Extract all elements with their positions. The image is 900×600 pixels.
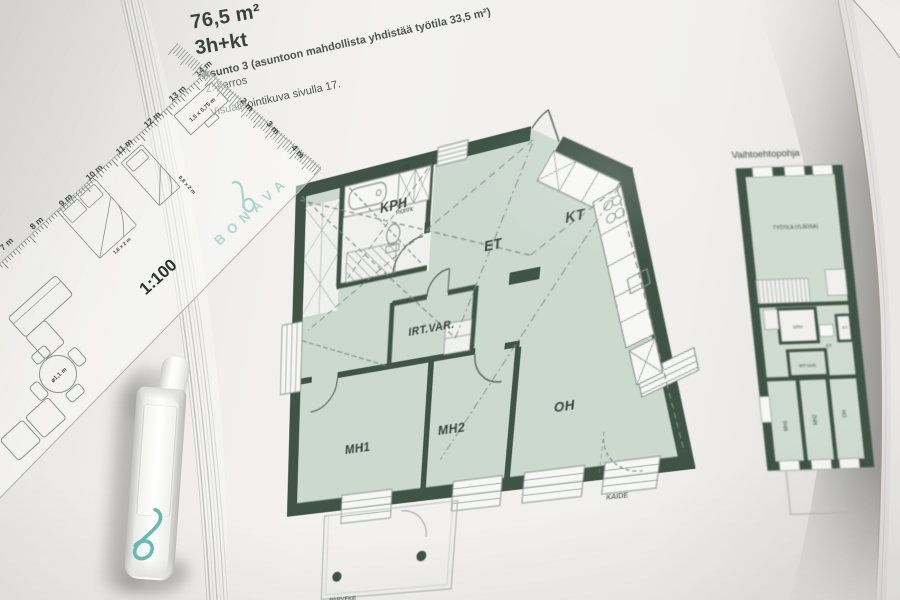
svg-text:7 m: 7 m bbox=[0, 235, 16, 253]
